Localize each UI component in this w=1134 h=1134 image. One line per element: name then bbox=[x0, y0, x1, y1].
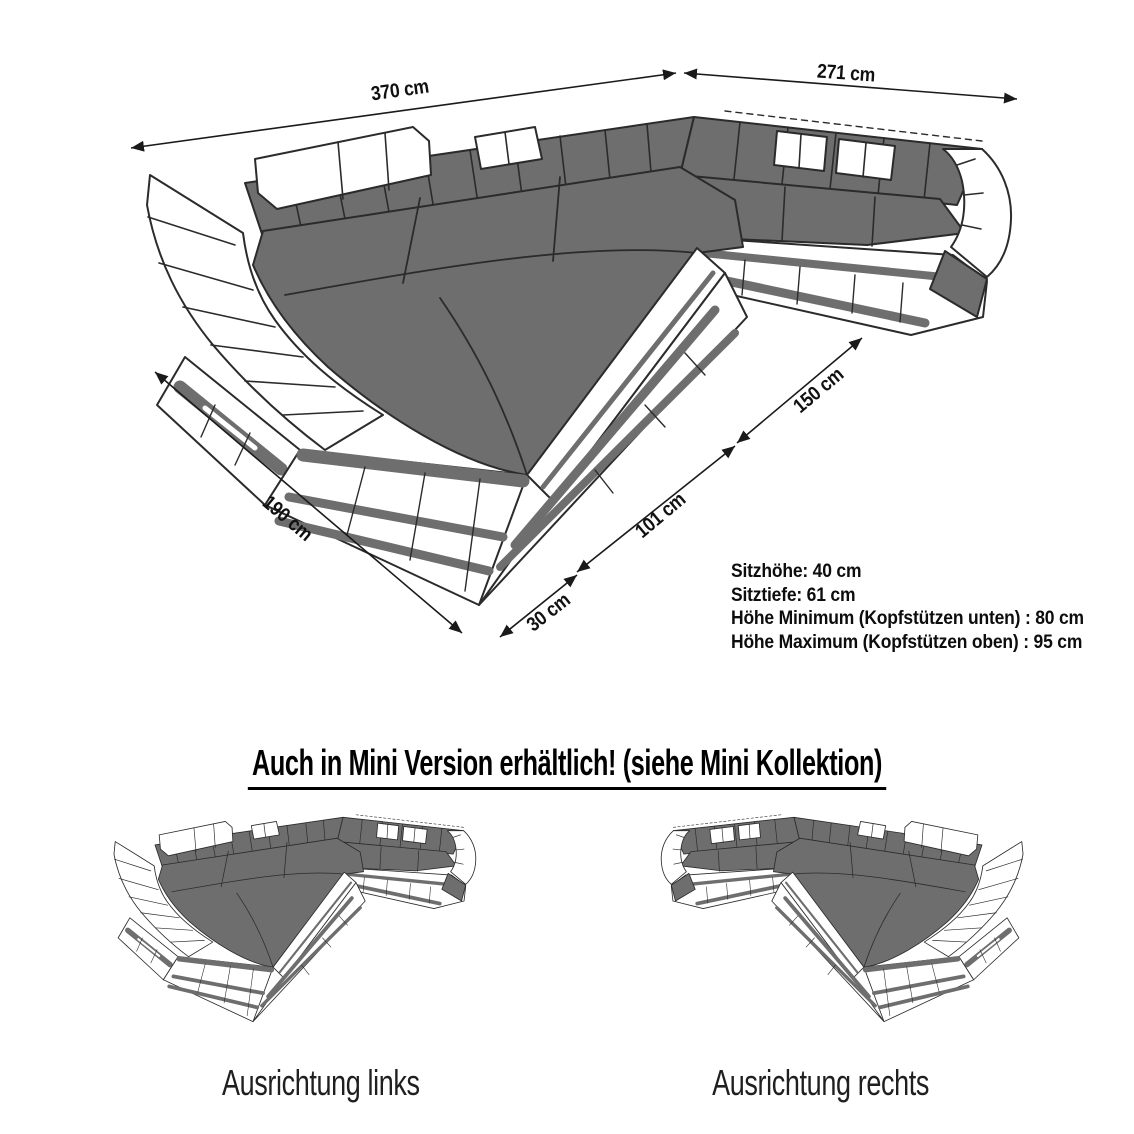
spec-seat-depth: Sitztiefe: 61 cm bbox=[731, 584, 1084, 608]
caption-row-left: Ausrichtung links bbox=[120, 1062, 522, 1104]
dim-arrow-150 bbox=[737, 338, 862, 443]
caption-orientation-left: Ausrichtung links bbox=[222, 1062, 420, 1104]
spec-height-min: Höhe Minimum (Kopfstützen unten) : 80 cm bbox=[731, 607, 1084, 631]
caption-row-right: Ausrichtung rechts bbox=[620, 1062, 1022, 1104]
mini-version-heading: Auch in Mini Version erhältlich! (siehe … bbox=[248, 742, 886, 790]
mini-sofa-right-drawing bbox=[647, 812, 1049, 1047]
dim-label-271: 271 cm bbox=[816, 61, 876, 88]
mini-version-heading-row: Auch in Mini Version erhältlich! (siehe … bbox=[0, 742, 1134, 790]
dim-arrow-190 bbox=[155, 372, 462, 633]
mini-sofa-left-drawing bbox=[88, 812, 490, 1047]
spec-text-block: Sitzhöhe: 40 cm Sitztiefe: 61 cm Höhe Mi… bbox=[731, 560, 1084, 654]
spec-seat-height: Sitzhöhe: 40 cm bbox=[731, 560, 1084, 584]
spec-height-max: Höhe Maximum (Kopfstützen oben) : 95 cm bbox=[731, 631, 1084, 655]
caption-orientation-right: Ausrichtung rechts bbox=[713, 1062, 930, 1104]
sofa-dimension-diagram: 370 cm 271 cm 150 cm 101 cm 190 cm 30 cm… bbox=[0, 0, 1134, 1134]
